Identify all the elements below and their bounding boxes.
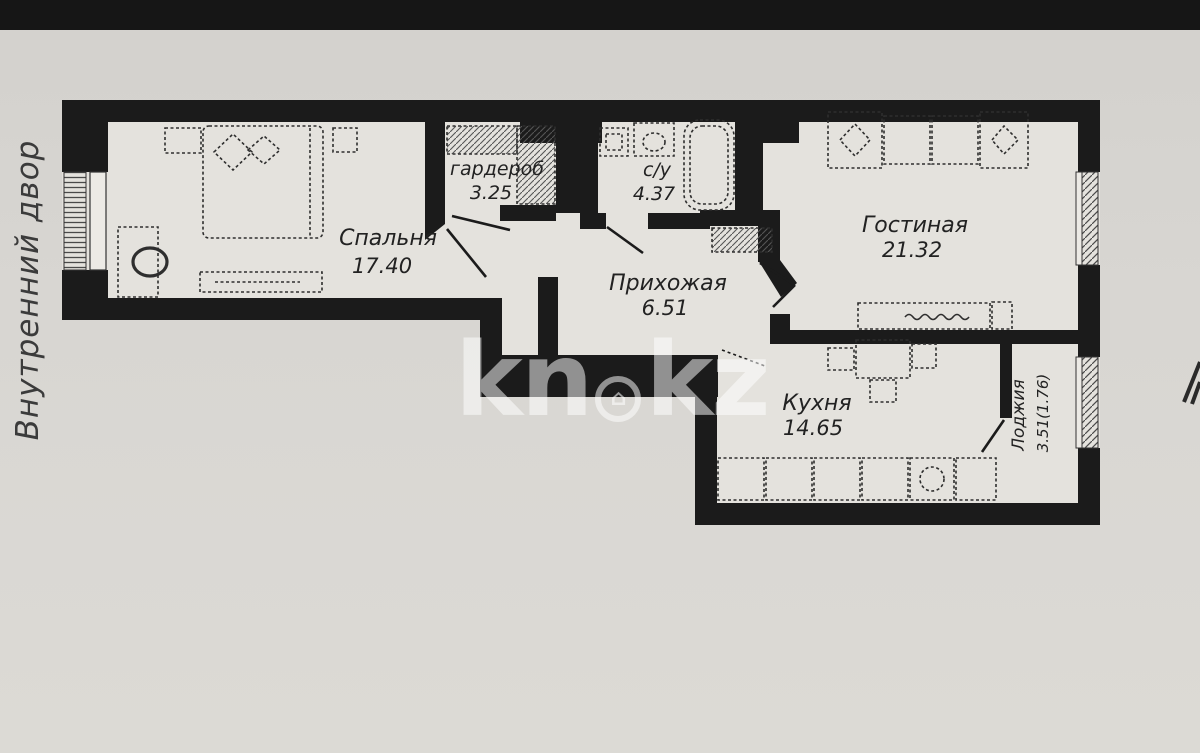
bedroom-area: 17.40 bbox=[352, 254, 412, 278]
bedroom-label: Спальня bbox=[339, 226, 437, 251]
hallway-area: 6.51 bbox=[642, 296, 689, 320]
loggia-label: Лоджия bbox=[1009, 379, 1029, 452]
shelf-icon bbox=[447, 126, 517, 154]
bathroom-label: с/у bbox=[643, 159, 672, 181]
kitchen-area: 14.65 bbox=[783, 416, 843, 440]
side-label: Внутренний двор bbox=[10, 110, 46, 470]
kitchen-label: Кухня bbox=[782, 391, 851, 416]
watermark-kz: kz bbox=[645, 330, 768, 432]
wardrobe-label: гардероб bbox=[450, 158, 544, 180]
cabinet-icon bbox=[712, 228, 772, 252]
watermark-kn: kn bbox=[455, 330, 591, 432]
watermark: kn ⌂ kz bbox=[455, 330, 769, 432]
hallway-label: Прихожая bbox=[609, 271, 727, 296]
wardrobe-area: 3.25 bbox=[470, 182, 512, 204]
loggia-area: 3.51(1.76) bbox=[1034, 374, 1052, 453]
bedroom-window bbox=[64, 172, 106, 270]
bathroom-area: 4.37 bbox=[633, 183, 675, 205]
living-area: 21.32 bbox=[882, 238, 942, 262]
photo-mark bbox=[1184, 362, 1200, 404]
loggia-window bbox=[1076, 357, 1098, 448]
living-label: Гостиная bbox=[862, 213, 968, 238]
house-icon: ⌂ bbox=[595, 376, 641, 422]
living-window bbox=[1076, 172, 1098, 265]
photo-top-bar bbox=[0, 0, 1200, 30]
